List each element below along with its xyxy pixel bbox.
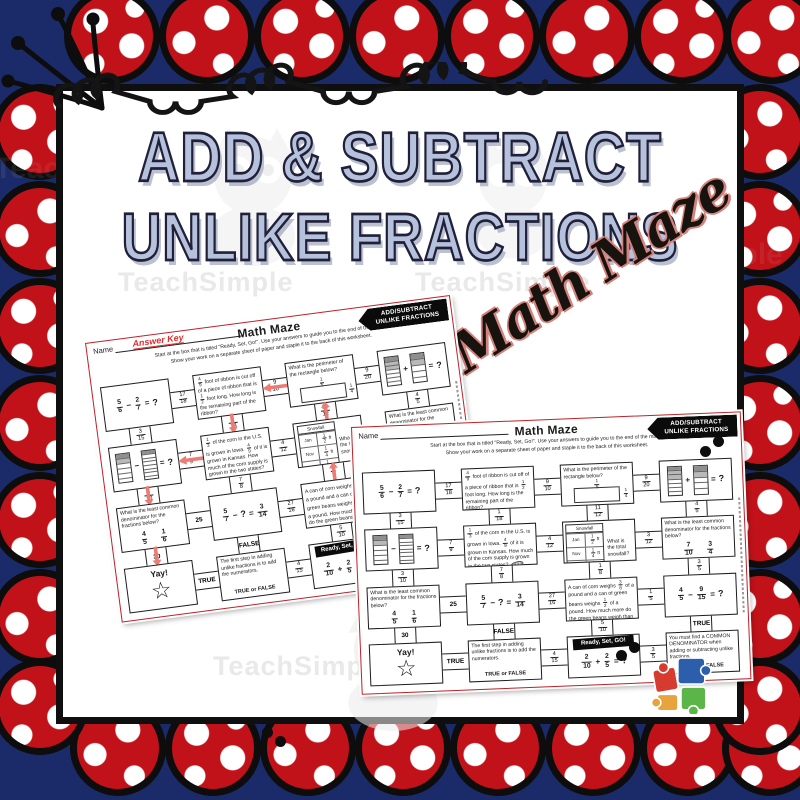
maze-box-word: 49 foot of ribbon is cut off of a piece … xyxy=(461,466,536,511)
equation-token: ? xyxy=(240,508,247,520)
fraction-value: 1112 xyxy=(594,506,603,519)
equation-token: ? xyxy=(498,597,504,608)
fraction-value: 27 xyxy=(134,397,142,413)
snowfall-table-row: Jan12 ft xyxy=(567,532,604,547)
grid-spacer xyxy=(441,625,467,641)
connector-value: 25 xyxy=(450,601,457,608)
fraction-value: 27 xyxy=(397,485,403,500)
connector-value: FALSE xyxy=(238,539,259,549)
corner-banner-line2: UNLIKE FRACTIONS xyxy=(664,426,728,436)
connector-value: FALSE xyxy=(493,627,514,635)
fraction-value: 2716 xyxy=(286,501,296,515)
maze-box-strips: −=? xyxy=(108,439,182,493)
unit-label: ft xyxy=(328,435,331,441)
word-problem: 49 foot of ribbon is cut off of a piece … xyxy=(464,469,532,511)
fraction-value: 910 xyxy=(543,480,552,493)
fraction-value: 18 xyxy=(598,564,604,577)
equation-token: − xyxy=(126,401,132,412)
maze-connector-cell: TRUE xyxy=(442,640,469,683)
maze-connector-vertical: 35 xyxy=(688,558,711,574)
maze-connector-horizontal: 415 xyxy=(286,558,312,578)
ladybug-dot xyxy=(629,642,640,653)
lcd-question: What is the least common denominator for… xyxy=(370,587,437,609)
fraction-value: 118 xyxy=(495,510,504,523)
month-cell: Nov xyxy=(300,447,320,462)
maze-box-equation: 45−915=? xyxy=(663,572,738,617)
maze-box-truefalse: The first step in adding unlike fraction… xyxy=(468,637,543,682)
fraction-value: 57 xyxy=(480,596,486,611)
equation-token: − xyxy=(490,598,495,608)
fraction-value: 35 xyxy=(696,560,702,573)
grid-spacer xyxy=(639,617,665,633)
maze-box-equation: 56−27=? xyxy=(100,378,174,432)
maze-box-perimeter: What is the perimeter of the rectangle b… xyxy=(560,462,635,507)
maze-box-strips: +=? xyxy=(658,458,733,503)
maze-box-yay: Yay!☆ xyxy=(124,560,198,614)
fraction-value: 34 xyxy=(707,541,713,556)
fraction-value: 415 xyxy=(294,562,304,576)
rectangle-side-label: 14 xyxy=(623,488,630,499)
fraction-strip-diagram xyxy=(115,453,134,485)
fraction-value: 310 xyxy=(398,572,407,585)
value-cell: 12 ft xyxy=(585,533,603,546)
maze-connector-horizontal: 25 xyxy=(440,596,466,614)
maze-connector-horizontal: 79 xyxy=(178,450,204,470)
unit-label: ft xyxy=(597,537,600,543)
fraction-value: 12 xyxy=(603,598,608,609)
maze-box-word: 49 foot of ribbon is cut off of a piece … xyxy=(192,366,266,420)
fraction-strip-diagram xyxy=(398,534,414,565)
fraction-value: 15 xyxy=(594,479,599,490)
fraction-value: 315 xyxy=(396,514,405,527)
connector-value: TRUE xyxy=(693,619,711,627)
maze-connector-horizontal: 910 xyxy=(262,377,288,397)
maze-connector-cell: 312 xyxy=(635,518,662,561)
fraction-value: 45 xyxy=(414,392,421,405)
question-mark: ? xyxy=(424,543,430,554)
maze-connector-horizontal: 79 xyxy=(438,538,464,556)
maze-connector-horizontal: 2716 xyxy=(539,592,565,610)
strip-cell xyxy=(669,491,682,496)
word-problem: 49 foot of ribbon is cut off of a piece … xyxy=(196,370,263,419)
fraction-value: 16 xyxy=(160,529,168,545)
strip-cell xyxy=(388,380,401,386)
equation-token: = xyxy=(248,508,254,519)
maze-box-strips: +=? xyxy=(377,342,451,396)
maze-box-truefalse: The first step in adding unlike fraction… xyxy=(216,548,290,602)
lcd-fractions: 4516 xyxy=(371,610,438,628)
operator: − xyxy=(391,545,396,555)
maze-connector-cell: 910 xyxy=(534,465,561,508)
fraction-value: 25 xyxy=(345,560,353,576)
strip-cell xyxy=(694,488,707,494)
ladybug-dot xyxy=(700,446,711,457)
month-cell: Jan xyxy=(567,534,586,547)
start-equation: 210+25=? xyxy=(571,649,638,676)
fraction-value: 412 xyxy=(545,537,554,550)
fraction-value: 13 xyxy=(468,528,473,539)
fraction-value: 45 xyxy=(141,531,149,547)
fraction-value: 49 xyxy=(465,471,470,482)
unit-label: ft xyxy=(330,448,333,454)
value-cell: 14 ft xyxy=(319,445,338,460)
maze-box-start: Ready, Set, GO!210+25=? xyxy=(566,633,641,678)
fraction-strip-diagram xyxy=(373,535,389,566)
maze-connector-cell: 1718 xyxy=(435,469,462,512)
value-cell: 12 ft xyxy=(317,431,336,446)
fraction-value: 14 xyxy=(349,383,355,394)
strip-cell xyxy=(413,375,427,382)
maze-box-equation: 57−?=314 xyxy=(465,580,540,625)
fraction-value: 1718 xyxy=(178,392,188,406)
maze-connector-horizontal: 2716 xyxy=(278,498,304,518)
maze-box-word: A can of corn weighs 38 of a pound and a… xyxy=(564,576,639,621)
equation-token: = xyxy=(506,597,511,607)
fraction-strip-diagram xyxy=(692,465,708,496)
fraction-value: 15 xyxy=(319,377,325,388)
fraction-value: 78 xyxy=(499,568,505,581)
maze-connector-cell: 79 xyxy=(437,526,464,569)
word-problem: 13 of the corn in the U.S. is grown in I… xyxy=(204,430,272,480)
fraction-value: 56 xyxy=(116,400,124,416)
rectangle-top-label: 15 xyxy=(593,479,600,490)
equation-token: ? xyxy=(718,588,724,599)
cover-card: TeachSimple TeachSimple TeachSimple ADD … xyxy=(56,84,744,724)
fraction-value: 16 xyxy=(411,611,417,626)
lcd-fractions: 71034 xyxy=(665,541,732,559)
maze-box-lcd: What is the least common denominator for… xyxy=(366,584,441,629)
maze-connector-vertical: 30 xyxy=(394,627,417,643)
fraction-value: 915 xyxy=(696,587,706,602)
maze-box-perimeter: What is the perimeter of the rectangle b… xyxy=(284,354,358,408)
equation-token: + xyxy=(337,564,343,575)
maze-connector-horizontal: 412 xyxy=(537,534,563,552)
equals-sign: = xyxy=(417,544,422,554)
fraction-value: 920 xyxy=(642,476,651,489)
maze-connector-vertical: 1112 xyxy=(587,505,610,521)
connector-value: 25 xyxy=(195,516,203,524)
fraction-value: 38 xyxy=(618,580,623,591)
maze-connector-horizontal: 1718 xyxy=(170,389,196,409)
word-problem-text: A can of corn weighs xyxy=(568,583,618,591)
maze-grid: 56−27=?171849 foot of ribbon is cut off … xyxy=(362,458,740,687)
fraction-value: 510 xyxy=(598,621,607,634)
snowfall-table: SnowfallJan12 ftNov14 ftDec16 ft xyxy=(296,421,340,468)
equation-token: − xyxy=(232,510,238,521)
maze-connector-vertical: 45 xyxy=(686,501,709,517)
grid-spacer xyxy=(637,560,663,576)
ladybug-dot xyxy=(616,650,627,661)
month-cell: Jan xyxy=(299,433,319,448)
unit-label: ft xyxy=(597,550,600,556)
maze-box-yay: Yay!☆ xyxy=(369,641,444,686)
maze-connector-vertical: FALSE xyxy=(493,623,516,639)
ladybug-dot xyxy=(275,736,286,747)
fraction-value: 12 xyxy=(521,480,526,491)
equals-sign: = xyxy=(711,475,716,485)
true-false-prompt: TRUE or FALSE xyxy=(472,670,538,680)
student-worksheet-preview: NameMath MazeStart at the box that is ti… xyxy=(351,411,751,694)
rectangle-top-label: 15 xyxy=(318,377,326,388)
maze-box-lcd: What is the least common denominator for… xyxy=(661,515,736,560)
fraction-value: 12 xyxy=(590,534,595,545)
snowfall-question: What is the total snowfall? xyxy=(607,538,633,558)
maze-connector-vertical: 78 xyxy=(490,566,513,582)
snowfall-table: SnowfallJan12 ftNov14 ftDec16 ft xyxy=(565,523,605,564)
equation-token: − xyxy=(389,487,394,497)
fraction-value: 56 xyxy=(379,485,385,500)
fraction-value: 314 xyxy=(257,504,268,520)
strip-cell xyxy=(400,559,413,563)
fraction-value: 210 xyxy=(323,562,334,578)
maze-connector-cell: 25 xyxy=(440,583,467,626)
true-false-statement: The first step in adding unlike fraction… xyxy=(471,640,538,672)
maze-connector-cell: 920 xyxy=(633,461,660,504)
connector-value: TRUE xyxy=(198,576,216,585)
maze-connector-vertical: 118 xyxy=(488,509,511,525)
lcd-question: What is the least common denominator for… xyxy=(664,518,731,540)
question-mark: ? xyxy=(167,456,174,468)
word-problem-text: foot of ribbon is cut off of a piece of … xyxy=(465,472,529,491)
question-mark: ? xyxy=(718,474,724,485)
corner-banner: ADD/SUBTRACTUNLIKE FRACTIONS xyxy=(647,415,738,441)
strip-cell xyxy=(119,477,133,483)
rectangle-side-label: 14 xyxy=(348,383,356,394)
maze-connector-vertical: 510 xyxy=(591,619,614,635)
maze-box-lcd: What is the least common denominator for… xyxy=(116,499,190,553)
maze-box-equation: 57−?=314 xyxy=(208,487,282,541)
equation-token: + xyxy=(595,657,600,667)
fraction-value: 79 xyxy=(448,541,454,554)
grid-spacer xyxy=(538,564,564,580)
fraction-value: 920 xyxy=(363,368,373,382)
fraction-value: 78 xyxy=(238,477,245,490)
word-problem: 13 of the corn in the U.S. is grown in I… xyxy=(467,526,535,568)
fraction-value: 315 xyxy=(136,429,146,443)
border-scallop xyxy=(724,0,800,84)
grid-spacer xyxy=(437,511,463,527)
maze-connector-cell: 2716 xyxy=(538,579,565,622)
fraction-strip-diagram xyxy=(384,356,403,388)
fraction-value: 14 xyxy=(323,447,329,458)
puzzle-pieces-logo-icon xyxy=(650,656,712,714)
rectangle-diagram: 1514 xyxy=(299,382,347,403)
fraction-strip-diagram xyxy=(140,449,159,481)
fraction-value: 49 xyxy=(503,538,508,549)
connector-value: 30 xyxy=(401,632,408,639)
month-cell: Nov xyxy=(567,547,586,560)
maze-connector-horizontal: TRUE xyxy=(442,653,468,671)
maze-connector-cell: 15 xyxy=(637,575,664,618)
maze-connector-vertical: 18 xyxy=(589,562,612,578)
strip-cell xyxy=(375,559,388,564)
fraction-value: 45 xyxy=(391,611,397,626)
maze-connector-cell: 415 xyxy=(541,636,568,679)
fraction-strip-diagram xyxy=(667,466,683,497)
maze-connector-horizontal: 920 xyxy=(355,365,381,385)
maze-box-word: 13 of the corn in the U.S. is grown in I… xyxy=(200,427,274,481)
equation-token: − xyxy=(688,590,693,600)
operator: + xyxy=(685,476,690,486)
fraction-value: 14 xyxy=(624,488,629,499)
maze-connector-horizontal: 15 xyxy=(638,588,664,606)
fraction-value: 412 xyxy=(278,441,288,455)
equation-token: ? xyxy=(415,486,421,497)
equals-sign: = xyxy=(159,458,165,469)
maze-connector-horizontal: 415 xyxy=(541,649,567,667)
ready-set-go-banner: Ready, Set, GO! xyxy=(572,635,634,650)
maze-connector-horizontal: TRUE xyxy=(194,571,220,591)
copyright-sideways-text xyxy=(738,497,745,612)
snowfall-problem: SnowfallJan12 ftNov14 ftDec16 ftWhat is … xyxy=(565,522,633,564)
fraction-value: 510 xyxy=(336,525,346,539)
equation-token: ? xyxy=(152,397,159,409)
fraction-value: 314 xyxy=(515,594,525,609)
operator: + xyxy=(403,365,409,376)
fraction-value: 312 xyxy=(644,533,653,546)
maze-connector-horizontal: 412 xyxy=(270,437,296,457)
maze-connector-horizontal: 312 xyxy=(635,530,661,548)
fraction-value: 15 xyxy=(648,590,654,603)
maze-box-word: 13 of the corn in the U.S. is grown in I… xyxy=(463,523,538,568)
ladybug-dot xyxy=(713,436,724,447)
fraction-value: 1718 xyxy=(444,484,453,497)
maze-connector-horizontal: 1718 xyxy=(435,481,461,499)
fraction-strip-diagram xyxy=(409,352,428,384)
fraction-value: 14 xyxy=(591,548,596,559)
fraction-value: 57 xyxy=(222,509,230,525)
question-mark: ? xyxy=(436,359,443,371)
maze-box-equation: 56−27=? xyxy=(362,470,437,515)
equation-token: = xyxy=(407,487,412,497)
fraction-value: 415 xyxy=(550,651,559,664)
operator: − xyxy=(134,462,140,473)
star-icon: ☆ xyxy=(373,656,440,682)
snowfall-table-row: Nov14 ft xyxy=(567,546,604,561)
product-cover-image: TeachSimple TeachSimple TeachSimple Teac… xyxy=(0,0,800,800)
maze-connector-horizontal: 25 xyxy=(186,510,212,530)
maze-connector-horizontal: 920 xyxy=(633,473,659,491)
fraction-value: 45 xyxy=(678,588,684,603)
equation-token: = xyxy=(710,589,715,599)
value-cell: 14 ft xyxy=(586,547,604,560)
maze-box-strips: −=? xyxy=(364,527,439,572)
fraction-value: 12 xyxy=(322,433,328,444)
grid-spacer xyxy=(439,568,465,584)
equals-sign: = xyxy=(428,361,434,372)
ladybug-dot xyxy=(262,727,273,738)
fraction-value: 710 xyxy=(684,542,694,557)
squiggle-doodle-decoration xyxy=(48,62,664,126)
rectangle-diagram: 1514 xyxy=(574,486,621,503)
maze-connector-vertical: TRUE xyxy=(690,615,713,631)
strip-cell xyxy=(145,475,158,480)
connector-value: TRUE xyxy=(447,658,465,666)
cover-title-line1: ADD & SUBTRACT xyxy=(63,118,737,199)
word-problem: A can of corn weighs 38 of a pound and a… xyxy=(568,579,636,621)
maze-connector-cell: 412 xyxy=(536,522,563,565)
maze-connector-vertical: 310 xyxy=(391,570,414,586)
word-problem-text: foot long. How long is the remaining par… xyxy=(465,491,523,511)
fraction-value: 25 xyxy=(604,654,610,669)
grid-spacer xyxy=(634,503,660,519)
fraction-value: 45 xyxy=(694,502,700,515)
equation-token: = xyxy=(144,399,150,410)
grid-spacer xyxy=(536,507,562,523)
word-problem-text: What is the perimeter of the rectangle b… xyxy=(288,358,343,378)
maze-box-snowfall: SnowfallJan12 ftNov14 ftDec16 ftWhat is … xyxy=(562,519,637,564)
grid-spacer xyxy=(540,621,566,637)
fraction-value: 210 xyxy=(582,655,592,670)
maze-connector-vertical: 315 xyxy=(389,513,412,529)
maze-connector-horizontal: 910 xyxy=(534,477,560,495)
fraction-value: 2716 xyxy=(548,594,557,607)
